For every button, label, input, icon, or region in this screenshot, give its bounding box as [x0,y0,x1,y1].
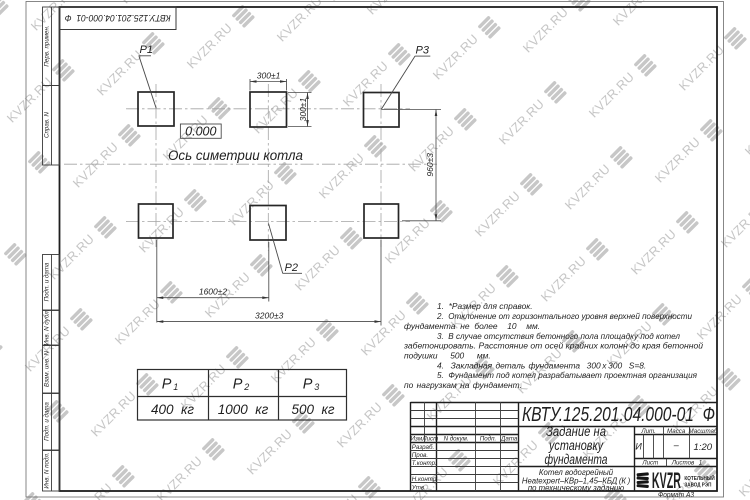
svg-text:Р1: Р1 [140,44,153,56]
svg-text:Взам. инв. N: Взам. инв. N [44,350,51,387]
svg-text:забетонировать. Расстояние от: забетонировать. Расстояние от осей крайн… [403,341,703,351]
svg-text:KVZR.RU: KVZR.RU [538,254,589,305]
svg-text:Листов: Листов [671,460,695,467]
svg-text:N докум.: N докум. [444,436,469,443]
svg-text:3200±3: 3200±3 [255,311,284,321]
svg-text:300±1: 300±1 [298,98,308,122]
svg-text:Инв. N дубл.: Инв. N дубл. [44,310,51,346]
svg-text:Перв. примен.: Перв. примен. [44,25,51,66]
svg-text:KVZR.RU: KVZR.RU [736,449,750,500]
svg-text:установку: установку [548,438,604,453]
svg-text:KVZR.RU: KVZR.RU [316,151,367,202]
svg-text:5. Фундамент под котел разраб: 5. Фундамент под котел разрабатывает про… [437,370,698,380]
svg-text:KVZR.RU: KVZR.RU [472,189,523,240]
svg-text:фундамента: фундамента [545,452,608,467]
svg-text:ЗАВОД РЭП: ЗАВОД РЭП [684,483,711,489]
svg-text:Т.контр.: Т.контр. [412,460,437,467]
svg-text:KVZR.RU: KVZR.RU [334,400,385,451]
svg-text:KVZR.RU: KVZR.RU [586,70,637,121]
svg-text:–: – [673,440,680,450]
svg-text:Задание на: Задание на [546,424,606,439]
svg-text:Инв. N подл.: Инв. N подл. [44,452,51,488]
svg-text:Подп. и дата: Подп. и дата [44,402,51,441]
svg-text:KVZR.RU: KVZR.RU [340,59,391,110]
svg-text:Р 3: Р 3 [303,377,319,393]
svg-text:Справ. N: Справ. N [44,112,51,138]
svg-text:Дата: Дата [500,436,518,443]
svg-text:Утв.: Утв. [411,484,426,491]
svg-text:1000 кг: 1000 кг [218,402,269,417]
svg-text:KVZR.RU: KVZR.RU [496,97,547,148]
svg-text:400 кг: 400 кг [151,402,194,417]
svg-text:KVZR.RU: KVZR.RU [226,178,277,229]
svg-text:Н.контр.: Н.контр. [412,476,438,483]
svg-text:KVZR.RU: KVZR.RU [94,48,145,99]
svg-text:KVZR.RU: KVZR.RU [742,108,750,159]
svg-text:1600±2: 1600±2 [199,287,228,297]
svg-text:4. Закладная деталь фундамент: 4. Закладная деталь фундамента 300 х 300… [437,360,646,370]
svg-text:KVZR.RU: KVZR.RU [184,21,235,72]
svg-text:Подп.: Подп. [480,436,496,443]
svg-text:2. Отклонение от горизонтальн: 2. Отклонение от горизонтального уровня … [436,311,692,321]
svg-text:KVZR.RU: KVZR.RU [112,297,163,348]
svg-text:Подп. и дата: Подп. и дата [44,262,51,301]
svg-text:KVZR.RU: KVZR.RU [358,308,409,359]
svg-text:Формат А3: Формат А3 [658,490,694,499]
svg-text:0.000: 0.000 [185,125,216,139]
svg-text:KVZR.RU: KVZR.RU [430,32,481,83]
svg-text:KVZR.RU: KVZR.RU [118,0,169,7]
svg-text:KVZR.RU: KVZR.RU [610,0,661,29]
svg-text:KVZR.RU: KVZR.RU [292,243,343,294]
svg-text:Лист: Лист [641,460,658,467]
svg-text:1:20: 1:20 [694,442,713,453]
svg-text:KVZR.RU: KVZR.RU [88,389,139,440]
svg-text:KVZR.RU: KVZR.RU [250,86,301,137]
svg-text:КВТУ.125.201.04.000-01 Ф: КВТУ.125.201.04.000-01 Ф [64,12,170,23]
svg-text:KVZR.RU: KVZR.RU [694,292,745,343]
svg-text:Ось симетрии котла: Ось симетрии котла [168,147,303,163]
svg-text:Р 2: Р 2 [233,377,249,393]
svg-text:Р 1: Р 1 [162,377,178,393]
svg-text:KVZR.RU: KVZR.RU [310,492,361,500]
svg-text:KVZR.RU: KVZR.RU [628,227,679,278]
svg-text:KVZR.RU: KVZR.RU [382,216,433,267]
svg-text:Разраб.: Разраб. [412,444,434,451]
svg-text:Масса: Масса [667,428,686,435]
svg-text:КОТЕЛЬНЫЙ: КОТЕЛЬНЫЙ [684,474,715,482]
svg-text:Р2: Р2 [285,262,298,274]
svg-text:Р3: Р3 [416,45,430,57]
svg-text:KVZR.RU: KVZR.RU [652,135,703,186]
svg-text:500 кг: 500 кг [291,402,334,417]
svg-text:фундамента не более 10 мм.: фундамента не более 10 мм. [404,321,540,331]
svg-text:KVZR.RU: KVZR.RU [364,0,415,18]
svg-text:KVZR.RU: KVZR.RU [70,140,121,191]
svg-text:Пров.: Пров. [412,452,428,459]
svg-text:по нагрузкам на фундамент.: по нагрузкам на фундамент. [404,380,522,390]
svg-text:KVZR.RU: KVZR.RU [46,232,97,283]
svg-text:960±3: 960±3 [425,153,435,177]
svg-text:KVZR.RU: KVZR.RU [676,43,727,94]
svg-text:1. *Размер для справок.: 1. *Размер для справок. [437,301,533,311]
svg-text:КВТУ.125.201.04.000-01 Ф: КВТУ.125.201.04.000-01 Ф [522,404,715,426]
svg-text:KVZR.RU: KVZR.RU [136,205,187,256]
svg-text:KVZR.RU: KVZR.RU [520,5,571,56]
svg-text:KVZR.RU: KVZR.RU [718,200,750,251]
svg-text:300±1: 300±1 [257,71,281,81]
svg-text:KVZR.RU: KVZR.RU [154,454,205,500]
svg-text:KVZR: KVZR [652,468,681,493]
svg-text:1: 1 [699,460,702,467]
svg-text:по техническому заданию: по техническому заданию [528,483,624,492]
svg-text:KVZR.RU: KVZR.RU [244,427,295,478]
svg-text:Лит.: Лит. [640,428,656,435]
svg-text:подушки 500 мм.: подушки 500 мм. [404,350,491,360]
svg-text:KVZR.RU: KVZR.RU [562,162,613,213]
svg-text:И: И [635,442,642,452]
svg-text:Лист: Лист [421,436,438,443]
svg-text:Масштаб: Масштаб [689,428,718,435]
svg-text:3. В случае отсутствия бетонн: 3. В случае отсутствия бетонного пола пл… [437,331,680,341]
